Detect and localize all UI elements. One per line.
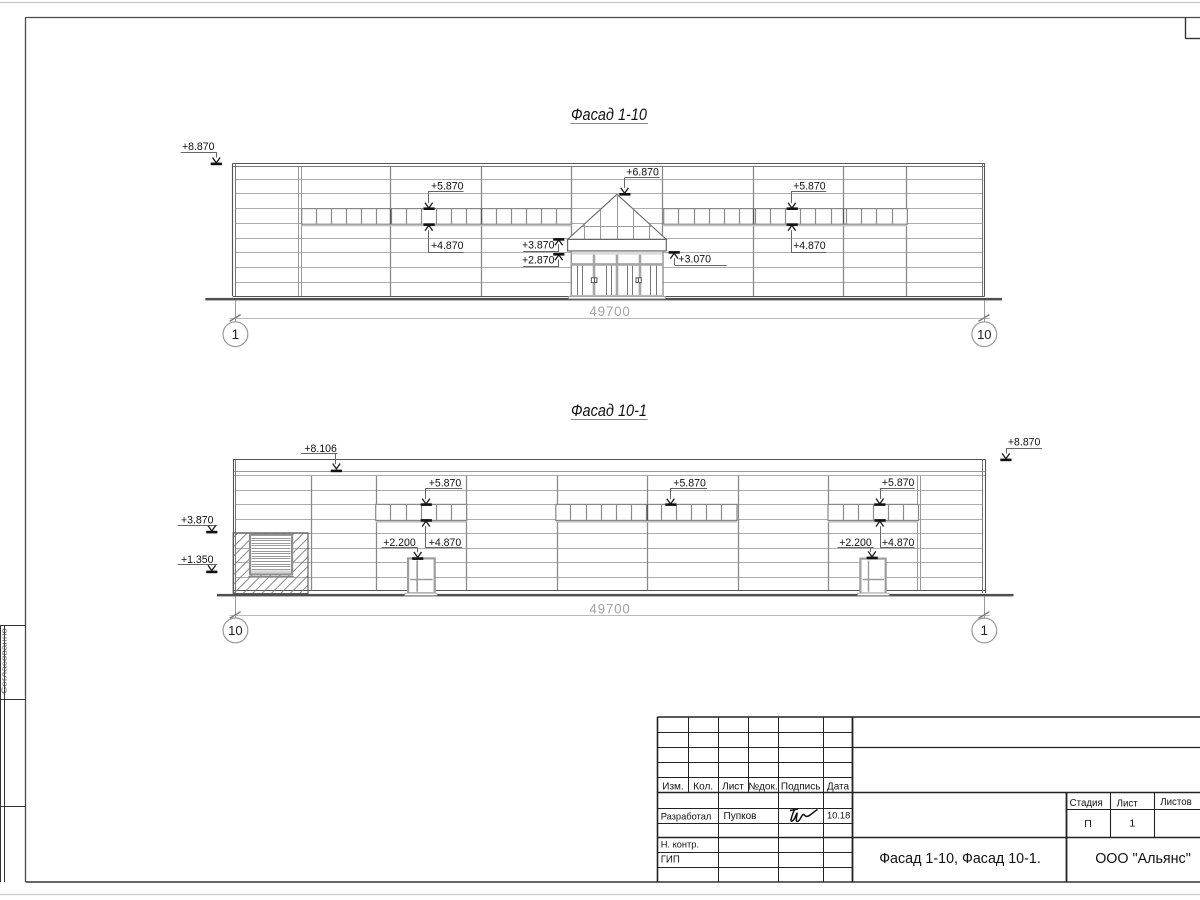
svg-text:+5.870: +5.870	[673, 478, 706, 490]
svg-text:+5.870: +5.870	[793, 180, 826, 192]
svg-text:+5.870: +5.870	[882, 477, 915, 489]
svg-text:+2.870: +2.870	[522, 255, 555, 267]
svg-text:Листов: Листов	[1160, 797, 1191, 808]
svg-text:+3.070: +3.070	[679, 254, 712, 266]
svg-text:Н. контр.: Н. контр.	[661, 839, 699, 849]
svg-text:1: 1	[981, 623, 989, 638]
svg-text:10: 10	[228, 623, 242, 638]
svg-text:1: 1	[1129, 818, 1135, 830]
svg-text:+5.870: +5.870	[431, 180, 464, 192]
svg-text:Фасад 1-10: Фасад 1-10	[571, 106, 647, 124]
svg-text:Согласованно: Согласованно	[2, 628, 9, 694]
svg-text:П: П	[1084, 818, 1092, 830]
svg-text:Стадия: Стадия	[1070, 798, 1103, 809]
svg-text:49700: 49700	[589, 601, 630, 616]
svg-text:Фасад 1-10, Фасад 10-1.: Фасад 1-10, Фасад 10-1.	[879, 851, 1041, 867]
svg-text:10: 10	[977, 327, 991, 342]
svg-text:+4.870: +4.870	[793, 240, 826, 252]
svg-text:Подпись: Подпись	[781, 781, 821, 792]
svg-text:Лист: Лист	[1117, 799, 1139, 810]
svg-text:Изм.: Изм.	[662, 781, 683, 792]
svg-text:Лист: Лист	[722, 781, 744, 792]
svg-text:49700: 49700	[589, 304, 630, 319]
svg-text:+4.870: +4.870	[431, 240, 464, 252]
svg-text:1: 1	[232, 327, 240, 342]
svg-text:+8.870: +8.870	[1008, 436, 1041, 448]
svg-text:10.18: 10.18	[827, 811, 850, 821]
svg-text:+6.870: +6.870	[626, 167, 659, 179]
svg-text:Кол.: Кол.	[693, 781, 713, 792]
svg-text:№док.: №док.	[748, 781, 777, 792]
svg-text:Пупков: Пупков	[724, 811, 757, 822]
svg-text:Фасад 10-1: Фасад 10-1	[571, 402, 647, 420]
svg-text:+3.870: +3.870	[181, 514, 214, 526]
svg-text:ООО "Альянс": ООО "Альянс"	[1095, 851, 1191, 867]
svg-text:+3.870: +3.870	[522, 240, 555, 252]
svg-text:+5.870: +5.870	[429, 478, 462, 490]
svg-text:Дата: Дата	[827, 781, 850, 792]
svg-text:+8.870: +8.870	[182, 141, 215, 153]
svg-text:Разработал: Разработал	[661, 811, 712, 821]
svg-text:ГИП: ГИП	[661, 854, 680, 865]
